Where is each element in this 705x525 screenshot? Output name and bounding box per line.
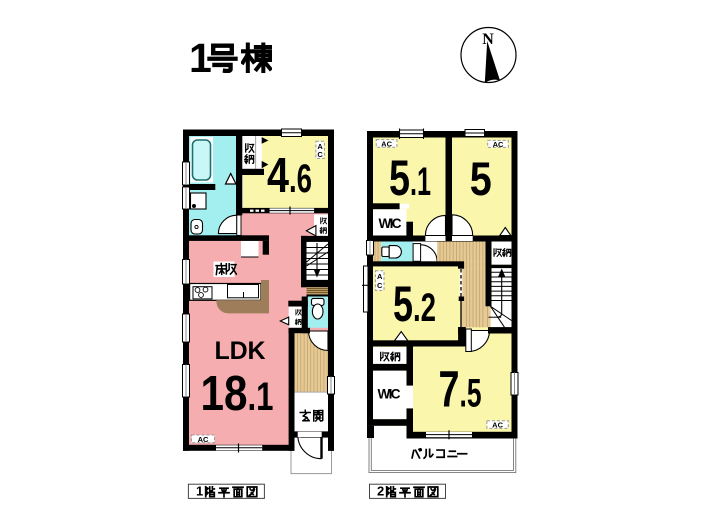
svg-text:2: 2 <box>377 484 384 499</box>
svg-text:5: 5 <box>470 152 492 205</box>
svg-text:AC: AC <box>492 421 503 430</box>
svg-text:C: C <box>317 150 323 159</box>
svg-text:C: C <box>377 281 383 290</box>
svg-text:WIC: WIC <box>379 216 402 231</box>
svg-text:WIC: WIC <box>378 387 401 402</box>
svg-text:AC: AC <box>493 140 504 149</box>
svg-text:LDK: LDK <box>215 337 266 365</box>
svg-text:18.1: 18.1 <box>201 367 274 421</box>
svg-text:4.6: 4.6 <box>267 149 312 203</box>
svg-text:A: A <box>377 272 383 281</box>
svg-text:1: 1 <box>196 484 203 499</box>
svg-text:AC: AC <box>198 435 209 444</box>
svg-text:AC: AC <box>381 139 392 148</box>
